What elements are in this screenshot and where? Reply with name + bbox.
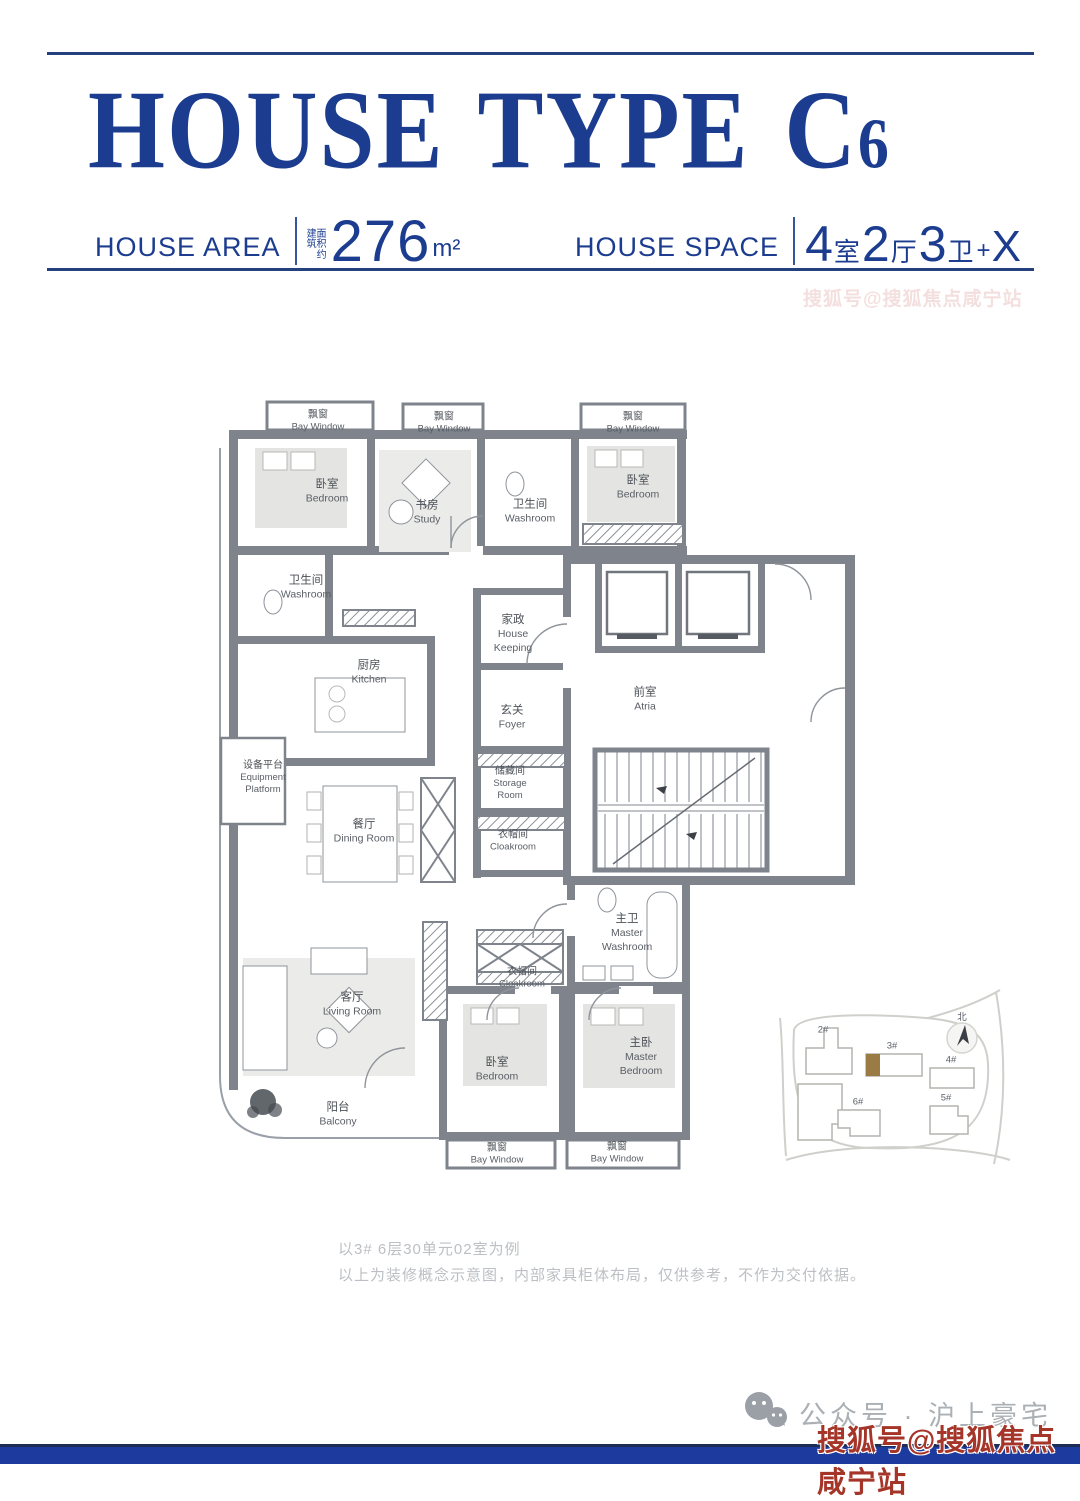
site-building-5: [930, 1106, 968, 1134]
header-rule-bottom: [47, 268, 1034, 271]
toilet-left: [264, 590, 282, 614]
room-label-washroom-top: 卫生间Washroom: [505, 498, 555, 527]
room-label-bedroom-tl: 卧室Bedroom: [306, 478, 349, 507]
room-label-dining: 餐厅Dining Room: [334, 818, 395, 847]
floor-plan: 飘窗Bay Window 飘窗Bay Window 飘窗Bay Window 卧…: [215, 388, 875, 1178]
room-label-cloakroom-lower: 衣帽间Cloakroom: [499, 965, 545, 990]
poster-page: { "header": { "title_main": "HOUSE TYPE …: [0, 0, 1080, 1461]
site-building-6: [838, 1110, 880, 1136]
note-line-1: 以3# 6层30单元02室为例: [338, 1238, 521, 1259]
site-label-4: 4#: [946, 1055, 957, 1066]
room-label-atria: 前室Atria: [634, 686, 657, 715]
space-divider: [793, 217, 795, 265]
page-title: HOUSE TYPE C6: [88, 66, 889, 195]
area-divider: [295, 217, 297, 265]
header-rule-top: [47, 52, 1034, 55]
area-unit: m²: [432, 235, 460, 263]
room-label-foyer: 玄关Foyer: [499, 704, 526, 733]
room-label-washroom-left: 卫生间Washroom: [281, 574, 331, 603]
room-label-bedroom-tr: 卧室Bedroom: [617, 474, 660, 503]
room-label-cloakroom-upper: 衣帽间Cloakroom: [490, 828, 536, 853]
site-highlight-unit: [866, 1054, 880, 1076]
note-line-2: 以上为装修概念示意图，内部家具柜体布局，仅供参考，不作为交付依据。: [338, 1264, 866, 1285]
page-title-number: 6: [858, 106, 889, 184]
site-plan: 2# 3# 4# 6# 5# 北: [778, 988, 1013, 1168]
site-label-3: 3#: [887, 1041, 898, 1052]
wechat-icon: [741, 1390, 793, 1439]
watermark-bottom: 搜狐号@搜狐焦点咸宁站: [817, 1417, 1080, 1501]
site-label-2: 2#: [818, 1025, 829, 1036]
watermark-top: 搜狐号@搜狐焦点咸宁站: [803, 284, 1023, 311]
room-label-study: 书房Study: [414, 499, 441, 528]
area-value: 276: [331, 216, 431, 267]
page-title-text: HOUSE TYPE C: [88, 68, 858, 192]
site-building-2: [806, 1028, 852, 1074]
space-value: 4室2厅3卫+X: [805, 222, 1021, 267]
toilet-master: [598, 888, 616, 912]
room-label-bay-window-tl: 飘窗Bay Window: [292, 408, 345, 433]
house-space-group: HOUSE SPACE 4室2厅3卫+X: [575, 205, 1021, 267]
site-label-6: 6#: [853, 1097, 864, 1108]
sofa: [243, 966, 287, 1070]
site-plan-drawing: [778, 988, 1013, 1168]
room-label-living: 客厅Living Room: [323, 991, 381, 1020]
room-label-bay-window-bl: 飘窗Bay Window: [471, 1141, 524, 1166]
room-label-storage: 储藏间StorageRoom: [493, 765, 526, 803]
site-label-5: 5#: [941, 1093, 952, 1104]
site-label-north: 北: [957, 1009, 967, 1023]
room-label-bay-window-tm: 飘窗Bay Window: [418, 410, 471, 435]
house-area-label: HOUSE AREA: [95, 234, 281, 261]
room-label-balcony: 阳台Balcony: [319, 1101, 356, 1130]
staircase: [595, 750, 767, 870]
area-note: 建面 筑积 约: [307, 230, 327, 262]
house-area-group: HOUSE AREA 建面 筑积 约 276 m²: [95, 205, 460, 267]
room-label-housekeeping: 家政HouseKeeping: [494, 613, 533, 655]
room-label-bay-window-br: 飘窗Bay Window: [591, 1140, 644, 1165]
room-label-bay-window-tr: 飘窗Bay Window: [607, 410, 660, 435]
room-label-kitchen: 厨房Kitchen: [351, 659, 386, 688]
toilet-top: [506, 472, 524, 496]
room-label-master-washroom: 主卫MasterWashroom: [602, 912, 652, 954]
room-label-equipment-platform: 设备平台EquipmentPlatform: [240, 759, 285, 797]
house-space-label: HOUSE SPACE: [575, 234, 779, 261]
site-building-4: [930, 1068, 974, 1088]
room-label-bedroom-bottom: 卧室Bedroom: [476, 1056, 519, 1085]
room-label-master-bedroom: 主卧MasterBedroom: [620, 1036, 663, 1078]
